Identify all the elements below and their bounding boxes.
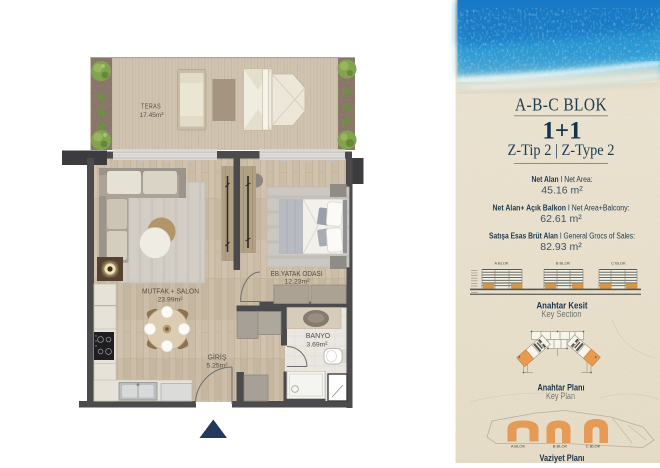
svg-text:C BLOK: C BLOK bbox=[611, 261, 626, 266]
svg-text:Key Section: Key Section bbox=[542, 309, 582, 319]
svg-text:C BLOK: C BLOK bbox=[586, 444, 601, 449]
svg-text:5.25m²: 5.25m² bbox=[206, 363, 228, 370]
svg-text:82.93 m²: 82.93 m² bbox=[540, 241, 582, 253]
svg-text:3.69m²: 3.69m² bbox=[306, 342, 328, 349]
svg-text:12.23m²: 12.23m² bbox=[285, 279, 311, 286]
svg-text:TERAS: TERAS bbox=[141, 104, 161, 111]
svg-text:B BLOK: B BLOK bbox=[556, 261, 571, 266]
svg-text:17.45m²: 17.45m² bbox=[140, 112, 165, 119]
svg-text:A-B-C BLOK: A-B-C BLOK bbox=[515, 95, 607, 115]
svg-text:A BLOK: A BLOK bbox=[494, 261, 509, 266]
svg-text:Z-Tip 2 | Z-Type 2: Z-Tip 2 | Z-Type 2 bbox=[508, 142, 615, 159]
svg-text:Key Plan: Key Plan bbox=[546, 391, 575, 401]
svg-text:Net Alan I Net Area:: Net Alan I Net Area: bbox=[532, 175, 593, 184]
svg-text:Vaziyet Planı: Vaziyet Planı bbox=[540, 453, 585, 463]
svg-text:GİRİŞ: GİRİŞ bbox=[207, 353, 226, 362]
svg-text:EB.YATAK ODASI: EB.YATAK ODASI bbox=[271, 271, 323, 278]
svg-text:1+1: 1+1 bbox=[542, 118, 581, 145]
svg-text:Satışa Esas Brüt Alan I Gene: Satışa Esas Brüt Alan I General Grocs of… bbox=[489, 232, 635, 241]
svg-text:BANYO: BANYO bbox=[306, 333, 331, 340]
svg-text:23.99m²: 23.99m² bbox=[158, 297, 184, 304]
svg-text:62.61 m²: 62.61 m² bbox=[540, 213, 582, 225]
svg-text:Net Alan+ Açık Balkon I Net: Net Alan+ Açık Balkon I Net Area+Balcony… bbox=[493, 204, 630, 213]
svg-text:B BLOK: B BLOK bbox=[553, 444, 568, 449]
svg-text:A BLOK: A BLOK bbox=[511, 444, 526, 449]
svg-text:MUTFAK + SALON: MUTFAK + SALON bbox=[142, 289, 199, 296]
svg-text:45.16 m²: 45.16 m² bbox=[541, 185, 583, 197]
